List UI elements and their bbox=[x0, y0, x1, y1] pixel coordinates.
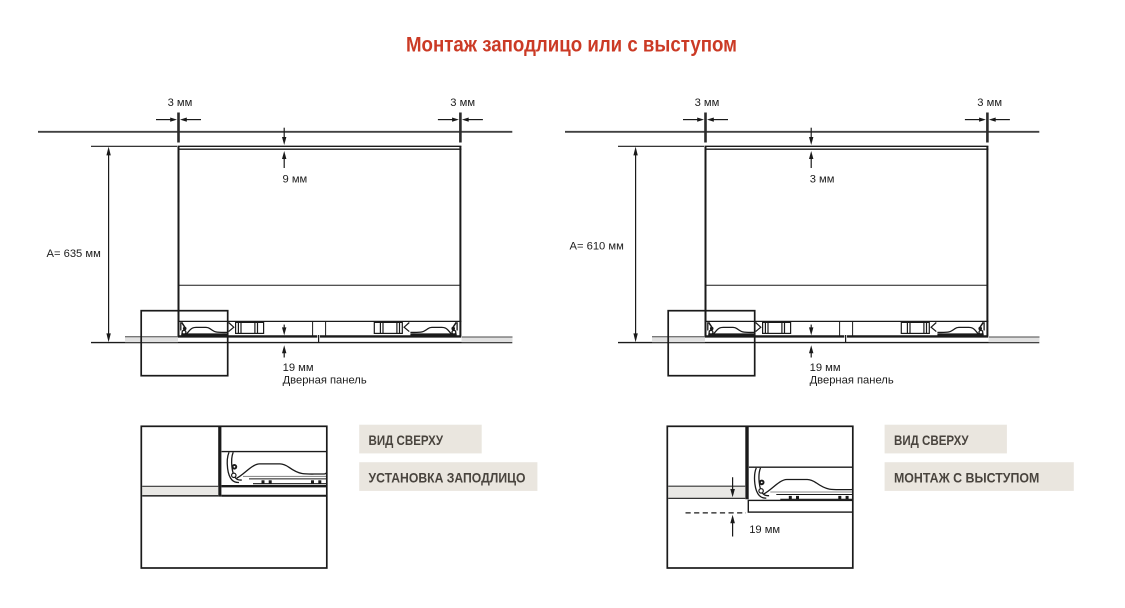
svg-text:УСТАНОВКА ЗАПОДЛИЦО: УСТАНОВКА ЗАПОДЛИЦО bbox=[369, 470, 526, 486]
svg-text:A= 635 мм: A= 635 мм bbox=[47, 248, 101, 260]
svg-text:ВИД СВЕРХУ: ВИД СВЕРХУ bbox=[894, 432, 969, 448]
svg-text:9 мм: 9 мм bbox=[283, 174, 308, 186]
svg-text:МОНТАЖ С ВЫСТУПОМ: МОНТАЖ С ВЫСТУПОМ bbox=[894, 470, 1039, 486]
svg-text:Монтаж заподлицо или с выступо: Монтаж заподлицо или с выступом bbox=[406, 33, 737, 57]
svg-text:ВИД СВЕРХУ: ВИД СВЕРХУ bbox=[369, 432, 444, 448]
svg-text:A= 610 мм: A= 610 мм bbox=[570, 240, 624, 252]
svg-text:19 мм: 19 мм bbox=[749, 524, 780, 536]
svg-text:3 мм: 3 мм bbox=[810, 174, 835, 186]
